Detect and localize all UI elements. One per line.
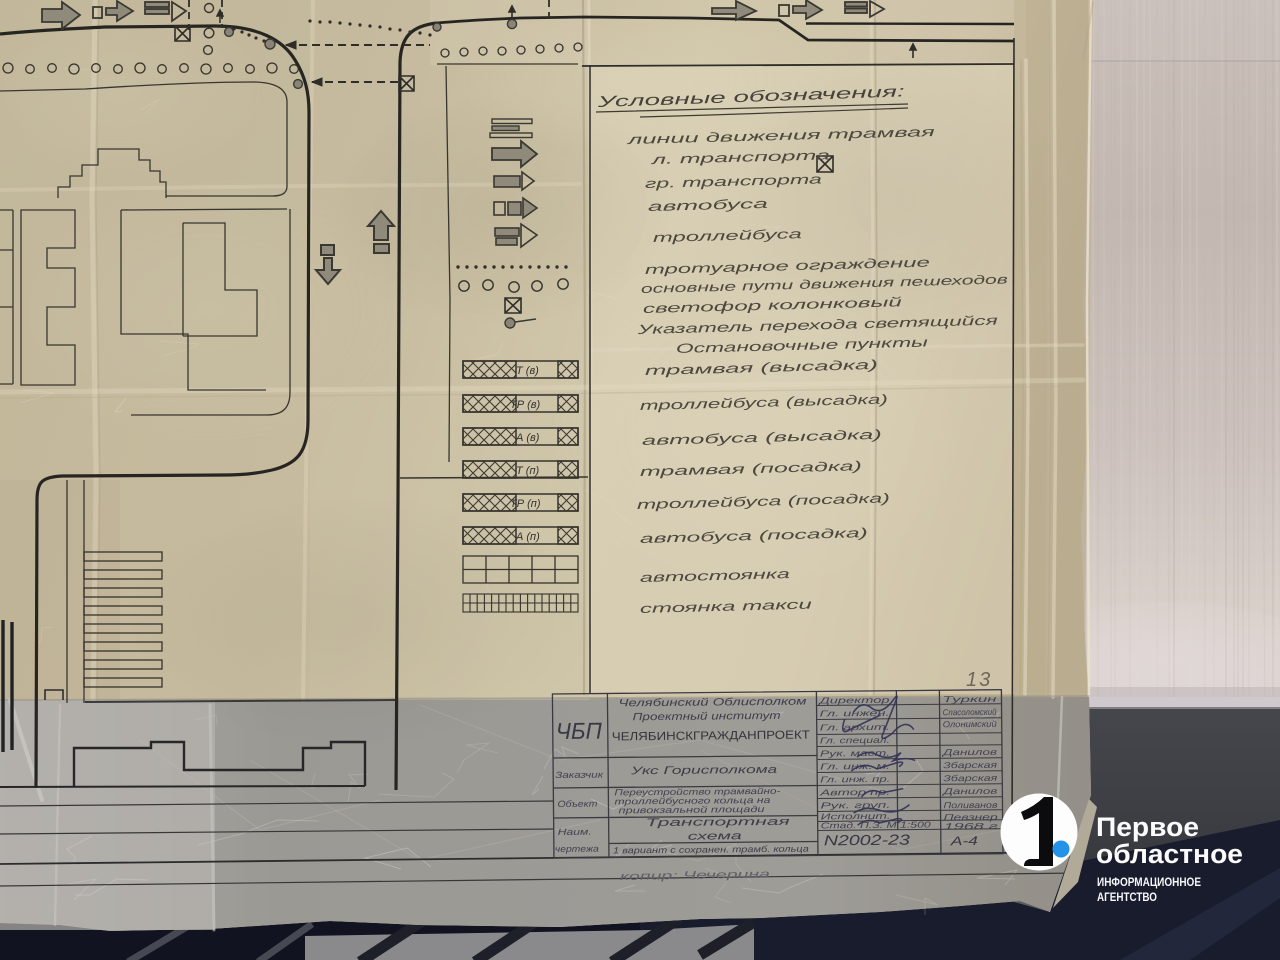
svg-text:Туркин: Туркин	[942, 694, 997, 705]
svg-text:Транспортная: Транспортная	[646, 816, 790, 829]
svg-text:схема: схема	[688, 830, 742, 843]
svg-text:Рук. груп.: Рук. груп.	[820, 800, 890, 811]
svg-text:ТР (п): ТР (п)	[510, 498, 541, 510]
svg-text:1 вариант с сохранен. трамб. к: 1 вариант с сохранен. трамб. кольца	[613, 844, 809, 856]
svg-text:Гл. инж. м.: Гл. инж. м.	[820, 761, 890, 772]
svg-text:Данилов: Данилов	[942, 786, 998, 797]
svg-text:Збарская: Збарская	[943, 760, 998, 771]
svg-text:А (п): А (п)	[515, 531, 540, 543]
svg-text:АГЕНТСТВО: АГЕНТСТВО	[1097, 892, 1157, 904]
svg-text:Наим.: Наим.	[558, 827, 592, 837]
svg-text:Данилов: Данилов	[941, 747, 997, 758]
svg-text:13: 13	[966, 669, 992, 691]
svg-text:ИНФОРМАЦИОННОЕ: ИНФОРМАЦИОННОЕ	[1097, 877, 1201, 889]
svg-text:Объект: Объект	[557, 799, 598, 809]
svg-text:ЧБП: ЧБП	[556, 718, 603, 744]
svg-text:Проектный институт: Проектный институт	[633, 710, 781, 723]
svg-text:Збарская: Збарская	[943, 773, 998, 784]
svg-text:Укс Горисполкома: Укс Горисполкома	[630, 764, 778, 777]
svg-text:Заказчик: Заказчик	[555, 770, 604, 780]
svg-text:ЧЕЛЯБИНСКГРАЖДАНПРОЕКТ: ЧЕЛЯБИНСКГРАЖДАНПРОЕКТ	[612, 728, 810, 744]
svg-text:А-4: А-4	[949, 834, 978, 848]
svg-text:Гл. специал.: Гл. специал.	[820, 735, 890, 746]
svg-text:Гл. инж. пр.: Гл. инж. пр.	[820, 774, 890, 785]
svg-text:Поливанов: Поливанов	[943, 800, 998, 811]
svg-text:ТР (в): ТР (в)	[510, 399, 541, 411]
svg-text:областное: областное	[1096, 839, 1243, 869]
svg-text:автобуса: автобуса	[648, 196, 768, 214]
svg-text:Олонимский: Олонимский	[943, 719, 997, 730]
svg-text:Директор: Директор	[818, 695, 890, 706]
svg-text:Первое: Первое	[1096, 812, 1199, 842]
svg-text:чертежа: чертежа	[555, 844, 599, 854]
svg-text:Рук. маст.: Рук. маст.	[820, 748, 890, 759]
svg-text:N2002-23: N2002-23	[824, 833, 910, 850]
svg-text:Спасоломский: Спасоломский	[943, 707, 997, 718]
svg-text:1968 г: 1968 г	[944, 821, 1000, 832]
svg-text:Челябинский Облисполком: Челябинский Облисполком	[618, 696, 806, 710]
svg-text:А (в): А (в)	[515, 432, 540, 444]
svg-text:Т (в): Т (в)	[516, 365, 539, 377]
svg-text:Т (п): Т (п)	[516, 465, 539, 477]
svg-text:привокзальной площади: привокзальной площади	[618, 804, 764, 815]
